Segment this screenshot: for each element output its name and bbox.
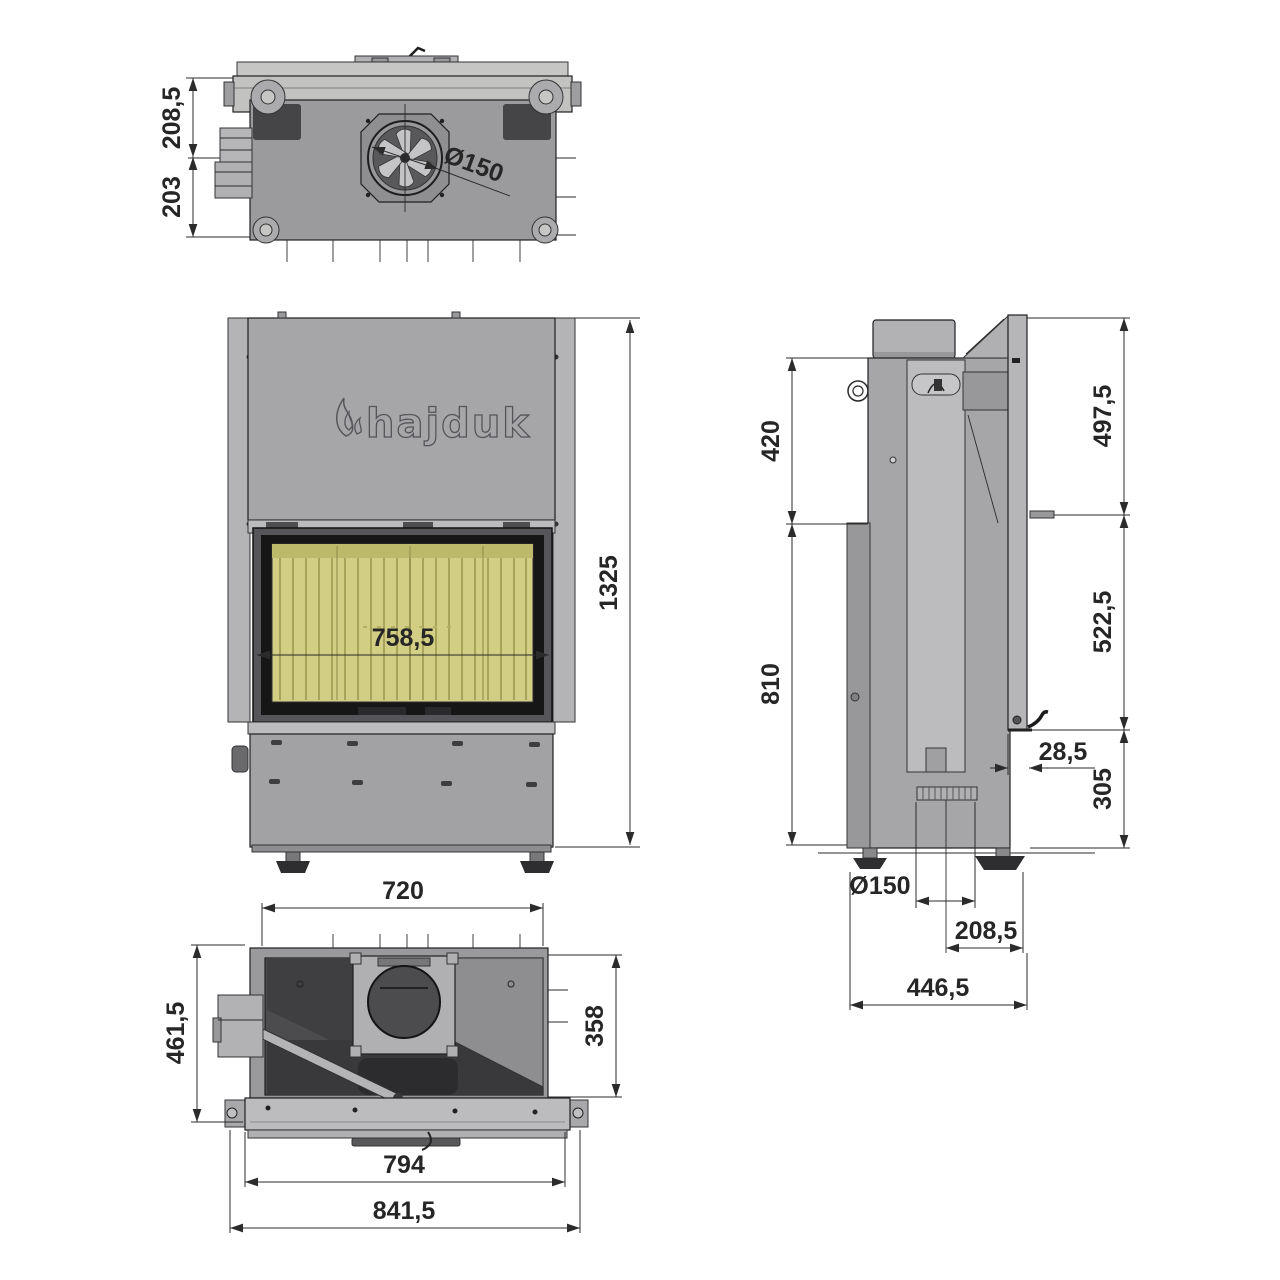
bottom-air-inlet-box [213, 995, 263, 1057]
dim-bottom-total-width: 841,5 [373, 1197, 436, 1225]
dim-side-upper-right: 497,5 [1089, 385, 1117, 448]
dim-front-glass-width: 758,5 [372, 624, 435, 652]
firebox-glass [272, 544, 533, 702]
ash-pan-lever [232, 746, 248, 772]
side-body [847, 316, 1010, 848]
bottom-width-dimension: 720 [262, 877, 543, 946]
dim-bottom-body-depth: 358 [581, 1005, 609, 1047]
top-view: 208,5 203 Ø150 [158, 48, 581, 262]
air-inlet-spigot [215, 128, 252, 198]
front-view: hajduk [228, 312, 640, 873]
dim-side-total-depth: 446,5 [907, 974, 970, 1002]
front-hood-panel: hajduk [248, 312, 555, 520]
bottom-view: 720 [162, 877, 622, 1233]
dim-side-hood-height: 420 [757, 420, 785, 462]
brand-logo: hajduk [337, 398, 531, 447]
lifting-eyelet [848, 381, 868, 401]
dim-side-inlet-diameter: Ø150 [849, 872, 910, 900]
technical-drawing-canvas: 208,5 203 Ø150 [0, 0, 1280, 1280]
dim-side-inlet-axis-to-front: 208,5 [955, 917, 1018, 945]
brand-logo-text: hajduk [366, 401, 531, 447]
adjustable-foot-left [276, 852, 310, 873]
door-lock-lever [1028, 712, 1048, 727]
adjustable-foot-right [520, 852, 554, 873]
front-base [232, 722, 555, 873]
dim-bottom-frame-width: 794 [383, 1151, 425, 1179]
side-feet [853, 848, 1025, 870]
dim-bottom-inner-width: 720 [382, 877, 424, 905]
side-front-frame [1008, 315, 1054, 730]
dim-front-total-height: 1325 [595, 555, 623, 611]
dim-side-middle-right: 522,5 [1089, 591, 1117, 654]
dim-side-frame-depth: 28,5 [1039, 738, 1088, 766]
dim-side-lower-right: 305 [1089, 768, 1117, 810]
drawing-svg: 208,5 203 Ø150 [0, 0, 1280, 1280]
bottom-front-rail [225, 1098, 588, 1150]
side-view: 420 810 497,5 522,5 305 28,5 [757, 315, 1130, 1010]
bottom-body-depth-dimension: 358 [548, 955, 622, 1097]
dim-side-body-height: 810 [757, 663, 785, 705]
dim-top-front-to-flue-axis: 208,5 [158, 87, 186, 150]
bottom-body [213, 948, 548, 1103]
dim-top-flue-axis-to-rear: 203 [158, 176, 186, 218]
damper-mechanism [912, 374, 960, 395]
dim-bottom-total-depth: 461,5 [162, 1002, 190, 1065]
flue-opening-plate [350, 953, 458, 1057]
